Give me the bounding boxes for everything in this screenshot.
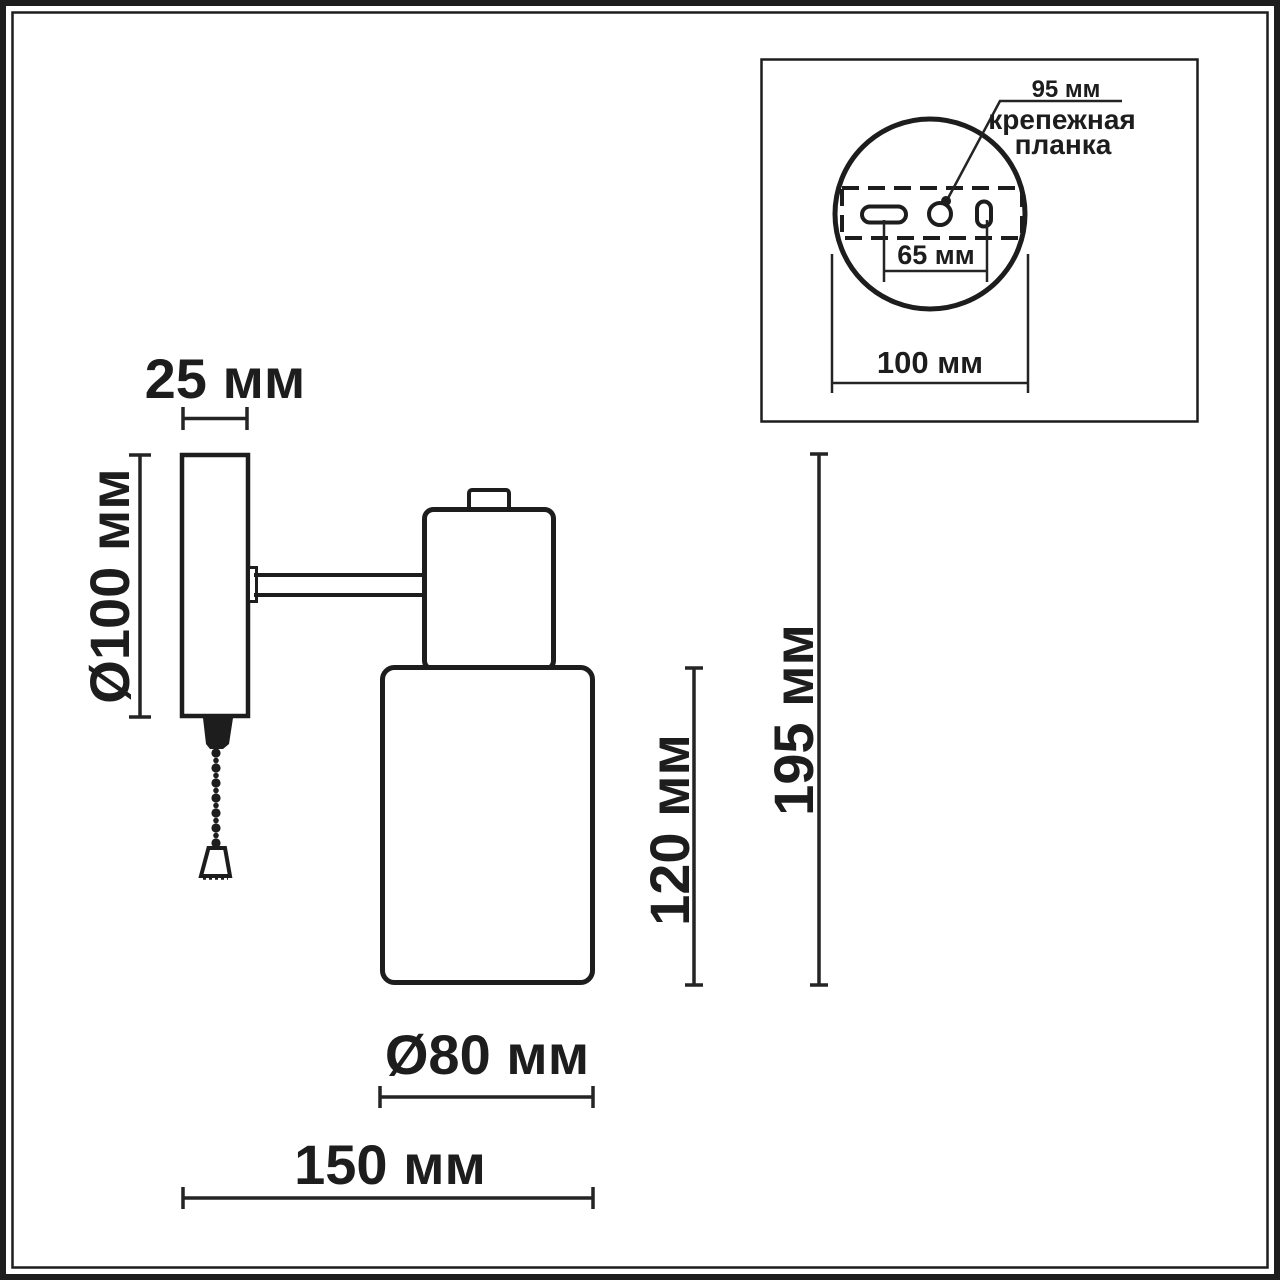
lamp-shade bbox=[383, 668, 593, 983]
pull-handle bbox=[201, 848, 230, 876]
depth-label: 150 мм bbox=[294, 1133, 486, 1196]
total-height-label: 195 мм bbox=[762, 624, 825, 816]
hole-spacing-label: 65 мм bbox=[897, 240, 974, 270]
pull-chain-switch bbox=[201, 718, 233, 879]
chain-ferrule bbox=[203, 718, 233, 749]
shade-height-label: 120 мм bbox=[638, 734, 701, 926]
bracket-length-label: 95 мм bbox=[1032, 76, 1101, 103]
lamp-holder bbox=[425, 510, 554, 670]
mounting-arm bbox=[254, 575, 424, 595]
lamp-side-view bbox=[182, 455, 593, 983]
mounting-inset: 95 мм крепежная планка 65 мм 100 мм bbox=[762, 60, 1198, 422]
wall-lamp-dimension-drawing: 25 мм Ø100 мм 120 мм 195 мм Ø80 мм 150 м… bbox=[0, 0, 1280, 1280]
leader-dot bbox=[941, 196, 951, 206]
dim-line-shade-diameter bbox=[380, 1086, 593, 1108]
shade-diameter-label: Ø80 мм bbox=[385, 1023, 589, 1086]
dim-line-plate-width bbox=[183, 407, 247, 430]
wall-plate bbox=[182, 455, 248, 716]
plate-diameter-label: Ø100 мм bbox=[78, 468, 141, 703]
technical-drawing-page: 25 мм Ø100 мм 120 мм 195 мм Ø80 мм 150 м… bbox=[0, 0, 1280, 1280]
base-diameter-label: 100 мм bbox=[877, 345, 983, 380]
bracket-name-line2: планка bbox=[1015, 129, 1112, 160]
center-hole bbox=[929, 203, 951, 225]
plate-width-label: 25 мм bbox=[145, 347, 306, 410]
chain-beads bbox=[211, 748, 220, 847]
side-hole bbox=[977, 202, 991, 227]
